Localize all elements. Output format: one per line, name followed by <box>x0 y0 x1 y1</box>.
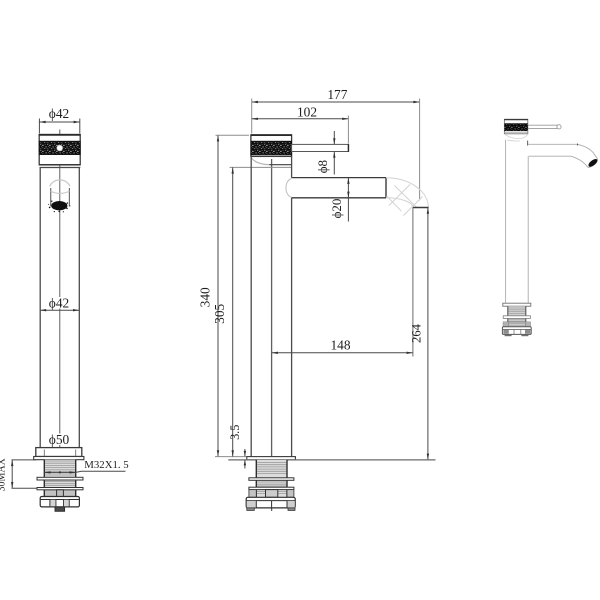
svg-text:ϕ42: ϕ42 <box>49 106 69 121</box>
svg-text:ϕ20: ϕ20 <box>329 199 344 219</box>
svg-text:M32X1. 5: M32X1. 5 <box>84 459 128 471</box>
svg-text:3.5: 3.5 <box>228 425 242 440</box>
svg-text:264: 264 <box>410 323 424 343</box>
svg-text:102: 102 <box>297 105 317 120</box>
svg-text:177: 177 <box>327 87 347 102</box>
svg-text:ϕ8: ϕ8 <box>315 160 330 173</box>
svg-text:ϕ42: ϕ42 <box>49 296 69 311</box>
svg-text:30MAX: 30MAX <box>0 457 8 491</box>
svg-text:305: 305 <box>212 303 227 323</box>
svg-text:340: 340 <box>198 287 213 307</box>
svg-text:148: 148 <box>330 338 350 353</box>
svg-text:ϕ50: ϕ50 <box>49 432 70 447</box>
